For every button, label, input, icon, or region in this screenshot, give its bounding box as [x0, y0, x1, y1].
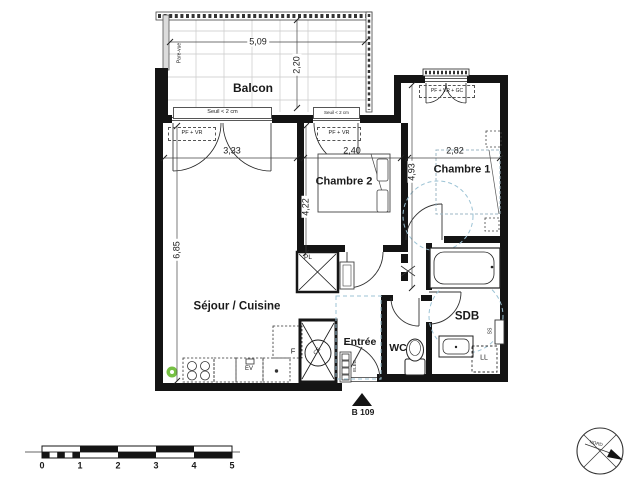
dim-balcony-width: 5,09 [247, 38, 269, 47]
electrical-panel-label: ELEC [353, 360, 358, 372]
privacy-screen-label: Pare-vue [178, 43, 183, 63]
green-marker [167, 367, 178, 378]
radiator-hall [340, 262, 354, 289]
towel-radiator [495, 320, 504, 344]
dim-bedroom1-width: 2,82 [446, 147, 464, 156]
unit-number-label: B 109 [352, 408, 375, 417]
scale-tick-4: 4 [191, 462, 196, 471]
room-label-entry: Entrée [344, 337, 377, 348]
window-tag-living: PF + VR [168, 127, 216, 141]
bathtub [430, 248, 500, 288]
scale-tick-5: 5 [229, 462, 234, 471]
balcony-railing [155, 12, 372, 115]
scale-tick-0: 0 [39, 462, 44, 471]
dim-living-depth: 6,85 [173, 239, 182, 261]
fridge [273, 326, 302, 358]
scale-tick-1: 1 [77, 462, 82, 471]
sink-tap [246, 359, 254, 364]
floor-plan-drawing [0, 0, 640, 480]
hob-burners [188, 359, 278, 380]
scale-tick-3: 3 [153, 462, 158, 471]
toilet [405, 339, 425, 375]
room-label-bedroom2: Chambre 2 [316, 177, 373, 188]
washbasin [439, 336, 473, 357]
washing-machine-label: LL [480, 355, 488, 362]
dim-balcony-depth: 2,20 [293, 54, 302, 76]
window-tag-bedroom2: PF + VR [317, 127, 361, 141]
privacy-screen [163, 15, 169, 70]
dim-bedroom1-depth: 4,93 [408, 161, 417, 183]
towel-rail-label: SS [489, 328, 494, 335]
room-label-bedroom1: Chambre 1 [434, 165, 491, 176]
balcony-tiles [168, 20, 366, 112]
kitchen-sink-label: EV [245, 366, 253, 372]
closet-label: PL [304, 255, 312, 262]
north-arrow [607, 449, 623, 460]
window-tag-bedroom1: PF + VR + GC [419, 85, 475, 98]
floor-plan: Balcon Séjour / Cuisine Chambre 2 Chambr… [0, 0, 640, 480]
room-label-balcony: Balcon [233, 82, 273, 94]
scale-tick-2: 2 [115, 462, 120, 471]
fridge-label: F [291, 347, 296, 355]
threshold-tag-right: Seuil < 2 cm [313, 107, 360, 119]
threshold-tag-left: Seuil < 2 cm [173, 107, 272, 119]
compass [577, 428, 623, 474]
room-label-wc: WC [389, 343, 407, 354]
dim-bedroom2-depth: 4,22 [302, 196, 311, 218]
dim-living-width: 3,33 [223, 147, 241, 156]
room-label-bathroom: SDB [455, 311, 479, 323]
scale-bar [25, 446, 240, 458]
dim-bedroom2-width: 2,40 [343, 147, 361, 156]
room-label-living: Séjour / Cuisine [194, 301, 281, 313]
electrical-panel [340, 352, 351, 382]
entrance-arrow [352, 393, 372, 406]
